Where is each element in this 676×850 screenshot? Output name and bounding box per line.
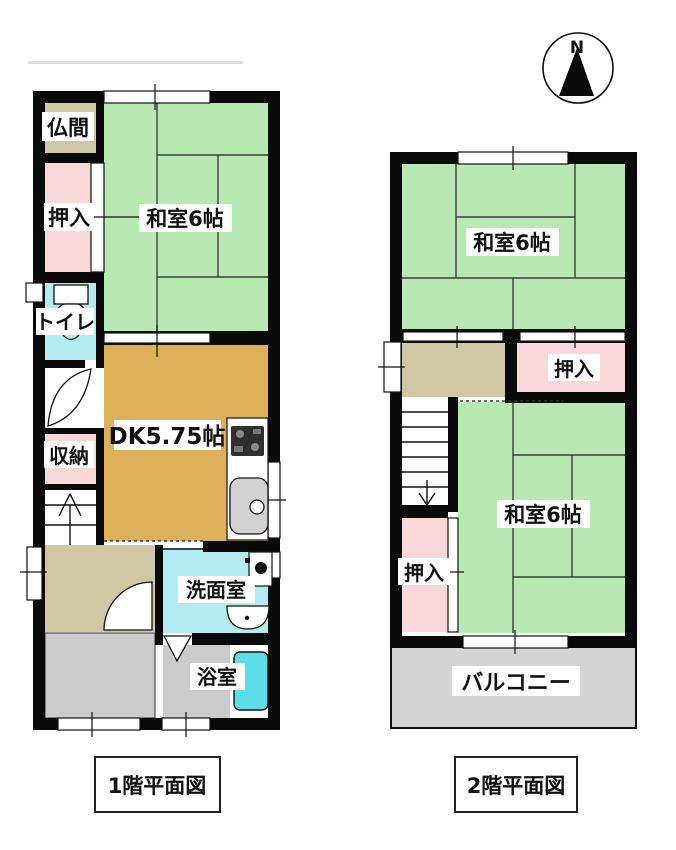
captions: 1階平面図 2階平面図	[95, 757, 577, 812]
oshiire2n-label: 押入	[554, 357, 594, 381]
floor1-window-bottom-left	[58, 718, 140, 730]
floor1-plan: 仏間 押入 和室6帖 トイレ DK5.75帖 収納 洗面室 浴室	[20, 61, 286, 737]
kitchen-unit	[227, 418, 268, 540]
washitsu2s-label: 和室6帖	[504, 503, 582, 527]
toilet-label: トイレ	[35, 310, 95, 334]
wash-basin-drain	[245, 616, 249, 620]
senmen-label: 洗面室	[186, 578, 246, 602]
floor1-caption: 1階平面図	[108, 774, 207, 798]
washer-tap-icon	[245, 558, 250, 563]
shuno-label: 収納	[49, 444, 89, 468]
floor1-window-top	[104, 91, 210, 103]
stove-grill	[234, 446, 243, 452]
oshiire2s-label: 押入	[404, 561, 444, 585]
floor1-toilet-door-gap	[85, 360, 96, 368]
washitsu2n-label: 和室6帖	[473, 231, 551, 255]
floor1-window-toilet	[26, 283, 43, 302]
floor1-genkan	[45, 633, 155, 718]
oshiire1-label: 押入	[48, 206, 90, 230]
floorplan-canvas: N	[0, 0, 676, 850]
floor2-hallway	[402, 343, 505, 397]
compass-north-label: N	[570, 38, 584, 58]
floor2-caption: 2階平面図	[467, 774, 566, 798]
floor2-plan: 和室6帖 押入 押入 和室6帖 バルコニー	[378, 146, 637, 728]
stove-burner-1	[236, 430, 244, 438]
floor2-stairs-area	[402, 397, 448, 505]
floor1-window-hall	[27, 547, 42, 600]
balcony-label: バルコニー	[461, 671, 571, 696]
compass-rose: N	[543, 33, 613, 103]
floor1-eaves-line	[28, 61, 243, 64]
washitsu1-label: 和室6帖	[146, 207, 224, 231]
yokushitsu-label: 浴室	[197, 665, 237, 689]
dk-label: DK5.75帖	[109, 424, 226, 450]
butsuma-label: 仏間	[47, 116, 89, 140]
washing-machine-drain-icon	[255, 562, 267, 574]
stove-panel	[253, 429, 261, 434]
stove-burner-2	[251, 443, 259, 451]
kitchen-faucet-icon	[250, 500, 264, 514]
